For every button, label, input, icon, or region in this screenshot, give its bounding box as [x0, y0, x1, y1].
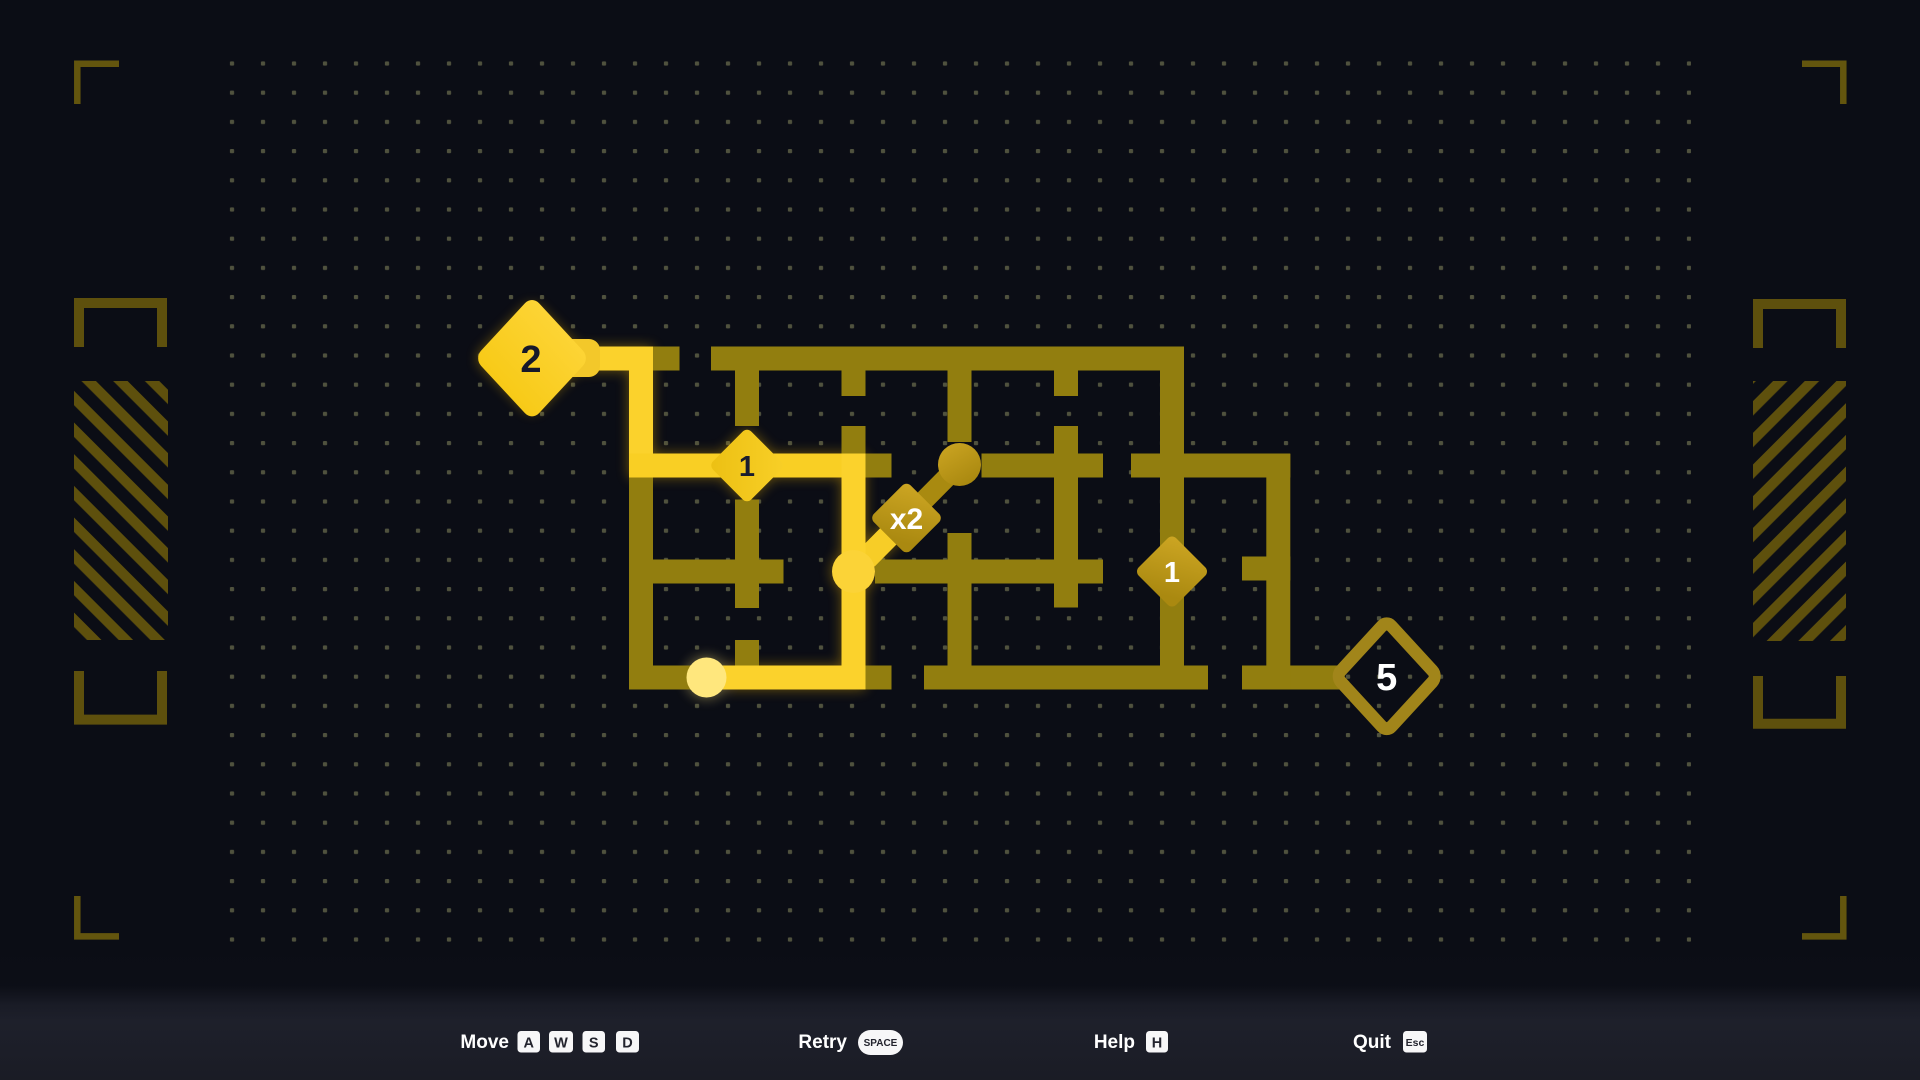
svg-text:H: H	[1152, 1035, 1162, 1051]
svg-text:D: D	[622, 1035, 632, 1051]
svg-text:Move: Move	[460, 1032, 509, 1053]
svg-text:Esc: Esc	[1406, 1037, 1425, 1049]
svg-text:2: 2	[520, 339, 541, 381]
svg-text:x2: x2	[890, 503, 923, 536]
svg-text:S: S	[589, 1035, 599, 1051]
svg-text:W: W	[554, 1035, 568, 1051]
svg-text:SPACE: SPACE	[864, 1038, 898, 1049]
svg-text:Retry: Retry	[798, 1032, 847, 1053]
svg-text:Quit: Quit	[1353, 1032, 1392, 1053]
svg-text:A: A	[523, 1035, 534, 1051]
svg-text:1: 1	[739, 451, 755, 483]
svg-text:1: 1	[1164, 557, 1180, 589]
svg-text:Help: Help	[1094, 1032, 1135, 1053]
svg-text:5: 5	[1376, 657, 1397, 699]
